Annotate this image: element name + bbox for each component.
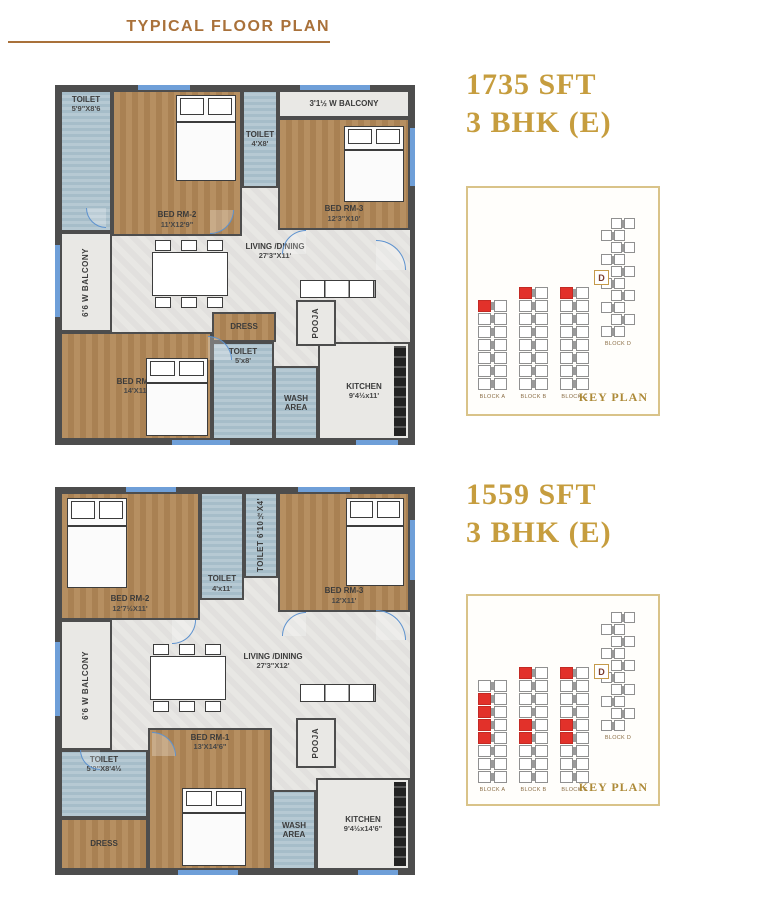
room-living-dining-label: LIVING /DINING 27'3"X12'	[208, 652, 338, 671]
tower-unit	[478, 732, 491, 744]
tower-unit	[560, 719, 573, 731]
keyplan-caption: KEY PLAN	[579, 780, 648, 795]
tower-row	[560, 693, 589, 705]
chair-icon	[155, 297, 171, 308]
room-kitchen: KITCHEN 9'4½x14'6"	[316, 778, 410, 870]
tower-row	[478, 732, 507, 744]
tower-unit	[535, 667, 548, 679]
room-pooja: POOJA	[296, 300, 336, 346]
window-strip	[55, 245, 60, 317]
tower-unit	[576, 719, 589, 731]
tower-unit	[478, 339, 491, 351]
tower-unit	[576, 758, 589, 770]
tower-unit	[535, 758, 548, 770]
room-dims: 5'9"X8'6	[72, 104, 101, 113]
room-label: WASH AREA	[276, 394, 316, 412]
tower-unit	[601, 326, 612, 337]
tower-unit	[576, 693, 589, 705]
blanket-line	[147, 382, 207, 384]
tower-unit	[519, 706, 532, 718]
tower-unit	[535, 732, 548, 744]
chair-icon	[181, 240, 197, 251]
tower-row	[611, 708, 635, 719]
tower-unit	[494, 706, 507, 718]
tower-unit	[624, 612, 635, 623]
tower-unit	[478, 313, 491, 325]
tower-unit	[614, 278, 625, 289]
room-toilet-a: TOILET 4'x11'	[200, 492, 244, 600]
tower-row	[519, 300, 548, 312]
tower-unit	[576, 680, 589, 692]
tower-row	[560, 680, 589, 692]
keyplan-tower	[560, 287, 589, 391]
keyplan-tower	[478, 300, 507, 391]
room-label: 6'6 W BALCONY	[81, 248, 90, 317]
sofa-icon	[300, 684, 376, 702]
room-label: BED RM-2	[111, 594, 150, 603]
keyplan-tower	[519, 287, 548, 391]
tower-unit	[494, 693, 507, 705]
room-label: BED RM-1	[191, 733, 230, 742]
tower-unit	[535, 745, 548, 757]
block-a: BLOCK A	[478, 300, 507, 400]
tower-row	[560, 365, 589, 377]
tower-unit	[624, 218, 635, 229]
tower-unit	[560, 287, 573, 299]
tower-unit	[535, 771, 548, 783]
tower-row	[601, 230, 635, 241]
tower-unit	[535, 693, 548, 705]
block-label: BLOCK A	[480, 394, 506, 400]
tower-unit	[494, 352, 507, 364]
tower-row	[478, 771, 507, 783]
tower-unit	[494, 745, 507, 757]
tower-unit	[624, 242, 635, 253]
tower-unit	[478, 758, 491, 770]
tower-row	[611, 612, 635, 623]
tower-unit	[494, 365, 507, 377]
tower-unit	[560, 300, 573, 312]
room-label: TOILET	[246, 130, 274, 139]
unit1-heading: 1735 SFT 3 BHK (E)	[466, 66, 612, 141]
tower-unit	[576, 352, 589, 364]
tower-row	[611, 314, 635, 325]
tower-unit	[494, 313, 507, 325]
tower-unit	[519, 352, 532, 364]
room-balcony-left: 6'6 W BALCONY	[60, 620, 112, 750]
tower-unit	[560, 378, 573, 390]
tower-unit	[478, 300, 491, 312]
chair-icon	[181, 297, 197, 308]
pillow-icon	[377, 501, 401, 518]
tower-row	[611, 636, 635, 647]
tower-unit	[519, 758, 532, 770]
room-label: LIVING /DINING	[208, 652, 338, 661]
pillow-icon	[350, 501, 374, 518]
tower-unit	[576, 732, 589, 744]
window-strip	[410, 128, 415, 186]
tower-unit	[494, 771, 507, 783]
block-label: BLOCK B	[521, 787, 547, 793]
room-toilet-middle: TOILET 4'X8'	[242, 90, 278, 188]
room-label: WASH AREA	[274, 821, 314, 839]
key-plan-1559: BLOCK A BLOCK B BLOCK C D BLOCK D KEY PL…	[466, 594, 660, 806]
tower-row	[478, 745, 507, 757]
tower-row	[478, 680, 507, 692]
tower-unit	[614, 696, 625, 707]
tower-row	[560, 352, 589, 364]
tower-unit	[535, 300, 548, 312]
tower-unit	[478, 365, 491, 377]
tower-unit	[614, 672, 625, 683]
tower-unit	[535, 326, 548, 338]
tower-row	[519, 326, 548, 338]
tower-unit	[576, 300, 589, 312]
room-dims: 12'7½X11'	[112, 604, 147, 613]
pillow-icon	[180, 98, 204, 115]
tower-row	[478, 693, 507, 705]
room-dress: DRESS	[60, 818, 148, 870]
room-wash-area: WASH AREA	[272, 790, 316, 870]
pillow-icon	[216, 791, 242, 806]
brochure-page: TYPICAL FLOOR PLAN 1735 SFT 3 BHK (E) 15…	[0, 0, 760, 916]
tower-unit	[560, 667, 573, 679]
page-title: TYPICAL FLOOR PLAN	[8, 18, 330, 36]
room-label: KITCHEN	[346, 382, 382, 391]
tower-unit	[478, 706, 491, 718]
tower-unit	[494, 378, 507, 390]
room-wash-area: WASH AREA	[274, 366, 318, 440]
tower-unit	[560, 365, 573, 377]
block-d: D BLOCK D	[601, 612, 635, 793]
room-dims: 4'X8'	[252, 139, 269, 148]
keyplan-tower: D	[601, 612, 635, 732]
tower-unit	[560, 680, 573, 692]
tower-row	[519, 365, 548, 377]
tower-row	[560, 313, 589, 325]
bed-icon	[67, 498, 127, 588]
tower-unit	[611, 708, 622, 719]
tower-unit	[576, 745, 589, 757]
tower-unit	[614, 648, 625, 659]
chair-icon	[207, 297, 223, 308]
tower-unit	[576, 287, 589, 299]
block-b: BLOCK B	[519, 667, 548, 793]
pillow-icon	[150, 361, 175, 376]
tower-row	[560, 378, 589, 390]
tower-unit	[560, 758, 573, 770]
pillow-icon	[99, 501, 123, 519]
tower-unit	[624, 660, 635, 671]
tower-row	[560, 758, 589, 770]
tower-unit	[601, 302, 612, 313]
room-label: BED RM-2	[158, 210, 197, 219]
pillow-icon	[186, 791, 212, 806]
room-dims: 14'X11'	[124, 386, 149, 395]
room-label: TOILET	[72, 95, 100, 104]
tower-unit	[535, 378, 548, 390]
tower-row	[478, 352, 507, 364]
pillow-icon	[348, 129, 372, 144]
room-label: BED RM-3	[325, 586, 364, 595]
room-living-dining-label: LIVING /DINING 27'3"X11'	[210, 242, 340, 261]
tower-unit	[611, 266, 622, 277]
keyplan-tower: D	[601, 218, 635, 338]
tower-unit	[494, 339, 507, 351]
room-dress: DRESS	[212, 312, 276, 342]
door-arc-icon	[282, 612, 306, 636]
tower-row	[478, 313, 507, 325]
block-d-marker: D	[594, 270, 609, 285]
tower-row	[519, 378, 548, 390]
chair-icon	[179, 701, 195, 712]
room-dims: 9'4½x11'	[349, 391, 379, 400]
tower-row	[611, 242, 635, 253]
tower-unit	[576, 667, 589, 679]
tower-unit	[624, 290, 635, 301]
room-label: 6'6 W BALCONY	[81, 651, 90, 720]
door-arc-icon	[282, 230, 306, 254]
tower-unit	[611, 314, 622, 325]
keyplan-towers: BLOCK A BLOCK B BLOCK C D BLOCK D	[478, 188, 635, 400]
bed-icon	[182, 788, 246, 866]
room-pooja: POOJA	[296, 718, 336, 768]
block-c: BLOCK C	[560, 287, 589, 400]
tower-row	[478, 300, 507, 312]
room-dims: 4'x11'	[212, 584, 232, 593]
tower-unit	[478, 771, 491, 783]
tower-unit	[519, 719, 532, 731]
tower-row	[611, 266, 635, 277]
tower-unit	[478, 693, 491, 705]
tower-unit	[611, 242, 622, 253]
tower-unit	[494, 326, 507, 338]
window-strip	[138, 85, 190, 90]
room-dims: 9'4½x14'6"	[344, 824, 382, 833]
tower-row	[519, 758, 548, 770]
tower-unit	[535, 352, 548, 364]
tower-row	[560, 300, 589, 312]
tower-unit	[560, 326, 573, 338]
unit2-heading: 1559 SFT 3 BHK (E)	[466, 476, 612, 551]
room-balcony-top: 3'1½ W BALCONY	[278, 90, 410, 118]
window-strip	[55, 642, 60, 716]
tower-unit	[624, 708, 635, 719]
tower-unit	[576, 339, 589, 351]
tower-row	[478, 758, 507, 770]
pillow-icon	[376, 129, 400, 144]
tower-unit	[535, 365, 548, 377]
room-toilet-bottom-left: TOILET 5'9"X8'4½	[60, 750, 148, 818]
stove-icon	[394, 346, 406, 436]
window-strip	[126, 487, 176, 492]
bed-icon	[346, 498, 404, 586]
tower-unit	[614, 720, 625, 731]
tower-row	[601, 254, 635, 265]
block-a: BLOCK A	[478, 680, 507, 793]
room-label: LIVING /DINING	[210, 242, 340, 251]
tower-unit	[560, 732, 573, 744]
room-toilet-vertical: TOILET 6'10½X4'	[244, 492, 278, 578]
room-balcony-left: 6'6 W BALCONY	[60, 232, 112, 332]
room-label: TOILET	[229, 347, 257, 356]
tower-unit	[611, 660, 622, 671]
tower-unit	[560, 339, 573, 351]
tower-unit	[601, 254, 612, 265]
door-arc-icon	[172, 620, 196, 644]
tower-unit	[624, 636, 635, 647]
blanket-line	[183, 812, 245, 814]
tower-unit	[624, 314, 635, 325]
window-strip	[356, 440, 398, 445]
room-kitchen: KITCHEN 9'4½x11'	[318, 342, 410, 440]
window-strip	[298, 487, 350, 492]
key-plan-1735: BLOCK A BLOCK B BLOCK C D BLOCK D KEY PL…	[466, 186, 660, 416]
tower-unit	[614, 230, 625, 241]
tower-row	[560, 667, 589, 679]
tower-unit	[478, 326, 491, 338]
window-strip	[358, 870, 398, 875]
blanket-line	[347, 525, 403, 527]
tower-unit	[576, 313, 589, 325]
room-label: TOILET 6'10½X4'	[256, 498, 265, 572]
tower-row	[611, 218, 635, 229]
unit2-area: 1559 SFT	[466, 476, 612, 514]
blanket-line	[345, 149, 403, 151]
room-dims: 27'3"X11'	[210, 251, 340, 260]
tower-row	[478, 365, 507, 377]
tower-unit	[614, 302, 625, 313]
window-strip	[178, 870, 238, 875]
door-arc-icon	[376, 240, 406, 270]
tower-unit	[519, 365, 532, 377]
tower-row	[519, 706, 548, 718]
tower-unit	[560, 693, 573, 705]
tower-unit	[576, 706, 589, 718]
unit2-bhk: 3 BHK (E)	[466, 514, 612, 552]
tower-unit	[494, 680, 507, 692]
tower-unit	[576, 365, 589, 377]
tower-unit	[535, 719, 548, 731]
floor-plan-1735: TOILET 5'9"X8'6 BED RM-2 11'X12'9" TOILE…	[55, 85, 415, 445]
tower-unit	[478, 719, 491, 731]
tower-row	[519, 667, 548, 679]
tower-row	[519, 287, 548, 299]
block-label: BLOCK D	[605, 735, 631, 741]
tower-unit	[611, 612, 622, 623]
title-underline: TYPICAL FLOOR PLAN	[8, 18, 330, 43]
block-c: BLOCK C	[560, 667, 589, 793]
tower-row	[560, 745, 589, 757]
tower-unit	[611, 218, 622, 229]
tower-unit	[535, 706, 548, 718]
room-label: POOJA	[311, 308, 320, 339]
tower-unit	[560, 745, 573, 757]
room-dims: 12'X11'	[332, 596, 357, 605]
floor-plan-1559: BED RM-2 12'7½X11' TOILET 4'x11' TOILET …	[55, 487, 415, 875]
tower-row	[519, 745, 548, 757]
tower-unit	[519, 339, 532, 351]
block-label: BLOCK B	[521, 394, 547, 400]
unit1-area: 1735 SFT	[466, 66, 612, 104]
tower-unit	[611, 290, 622, 301]
tower-unit	[519, 313, 532, 325]
tower-unit	[494, 758, 507, 770]
keyplan-towers: BLOCK A BLOCK B BLOCK C D BLOCK D	[478, 596, 635, 793]
blanket-line	[177, 121, 235, 123]
keyplan-tower	[478, 680, 507, 784]
tower-unit	[601, 648, 612, 659]
tower-unit	[624, 684, 635, 695]
door-arc-icon	[376, 610, 406, 640]
tower-unit	[494, 732, 507, 744]
tower-row	[601, 326, 635, 337]
tower-row	[519, 732, 548, 744]
chair-icon	[153, 644, 169, 655]
tower-unit	[478, 680, 491, 692]
block-d-marker: D	[594, 664, 609, 679]
chair-icon	[153, 701, 169, 712]
tower-unit	[560, 352, 573, 364]
pillow-icon	[208, 98, 232, 115]
unit1-bhk: 3 BHK (E)	[466, 104, 612, 142]
room-dims: 5'x8'	[235, 356, 251, 365]
tower-row	[601, 648, 635, 659]
tower-row	[611, 684, 635, 695]
tower-unit	[611, 636, 622, 647]
tower-unit	[560, 706, 573, 718]
tower-row	[560, 287, 589, 299]
bed-icon	[146, 358, 208, 436]
tower-unit	[519, 667, 532, 679]
tower-unit	[601, 720, 612, 731]
keyplan-tower	[519, 667, 548, 784]
tower-unit	[494, 300, 507, 312]
chair-icon	[179, 644, 195, 655]
window-strip	[410, 520, 415, 580]
chair-icon	[205, 701, 221, 712]
tower-unit	[519, 771, 532, 783]
tower-unit	[519, 745, 532, 757]
tower-unit	[576, 378, 589, 390]
tower-row	[519, 313, 548, 325]
tower-row	[601, 624, 635, 635]
tower-unit	[519, 326, 532, 338]
tower-row	[611, 660, 635, 671]
tower-unit	[560, 313, 573, 325]
tower-unit	[614, 326, 625, 337]
tower-unit	[535, 287, 548, 299]
tower-row	[601, 720, 635, 731]
window-strip	[300, 85, 370, 90]
tower-unit	[478, 378, 491, 390]
keyplan-tower	[560, 667, 589, 784]
tower-unit	[601, 696, 612, 707]
tower-unit	[535, 680, 548, 692]
tower-row	[560, 732, 589, 744]
tower-row	[519, 771, 548, 783]
bed-icon	[344, 126, 404, 202]
tower-unit	[560, 771, 573, 783]
blanket-line	[68, 525, 126, 527]
block-d: D BLOCK D	[601, 218, 635, 400]
tower-unit	[478, 352, 491, 364]
tower-row	[601, 696, 635, 707]
tower-row	[519, 719, 548, 731]
tower-unit	[519, 732, 532, 744]
tower-row	[478, 326, 507, 338]
tower-unit	[624, 266, 635, 277]
